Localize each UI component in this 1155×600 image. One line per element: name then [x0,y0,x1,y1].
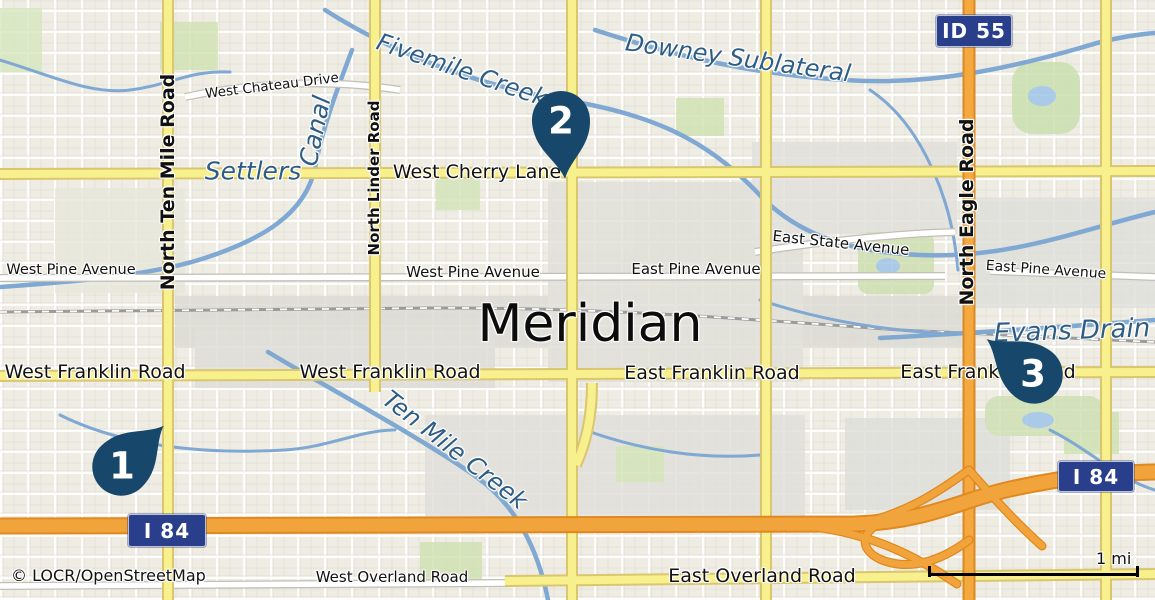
scale-bar [928,566,1139,577]
marker-number: 2 [548,100,574,143]
map-canvas[interactable]: Settlers Canal Fivemile Creek Downey Sub… [0,0,1155,600]
highway-shield-i84-right: I 84 [1058,461,1134,492]
highway-shield-id55: ID 55 [936,15,1012,47]
water-label-settlers: Settlers [205,157,301,186]
map-marker-3[interactable]: 3 [973,314,1093,444]
map-marker-2[interactable]: 2 [501,61,621,191]
road-label-west-franklin-left: West Franklin Road [4,361,185,383]
road-label-east-pine-center: East Pine Avenue [631,260,760,278]
road-label-west-franklin-center: West Franklin Road [299,361,480,383]
city-label: Meridian [478,294,703,354]
map-marker-1[interactable]: 1 [62,406,182,536]
road-label-west-overland: West Overland Road [316,568,469,586]
map-attribution: © LOCR/OpenStreetMap [11,566,206,585]
marker-number: 1 [109,445,135,488]
road-label-north-ten-mile: North Ten Mile Road [157,74,179,291]
road-label-north-linder: North Linder Road [365,101,383,256]
road-label-east-franklin-center: East Franklin Road [624,362,799,384]
shield-label: I 84 [1073,465,1119,489]
shield-label: ID 55 [942,19,1006,43]
road-label-west-pine-left: West Pine Avenue [6,262,135,278]
road-label-west-pine-center: West Pine Avenue [406,263,540,281]
road-label-east-overland: East Overland Road [668,565,855,587]
marker-number: 3 [1020,353,1046,396]
road-label-north-eagle: North Eagle Road [956,118,978,305]
